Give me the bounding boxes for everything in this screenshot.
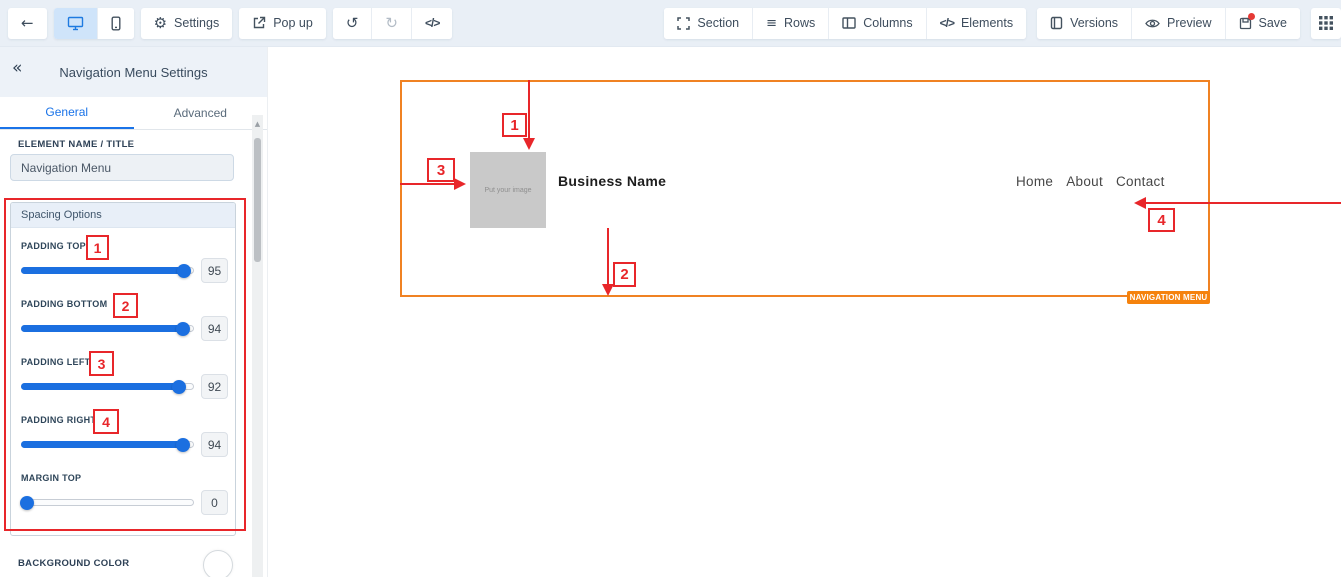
padding-left-slider[interactable] [21,383,194,390]
section-icon [677,17,690,30]
canvas-annotation-4: 4 [1148,208,1175,232]
columns-label: Columns [863,16,912,30]
margin-top-value[interactable]: 0 [201,490,228,515]
slider-fill [21,383,178,390]
logo-placeholder-text: Put your image [484,187,531,194]
elements-icon: </> [940,16,954,30]
tab-advanced[interactable]: Advanced [134,97,268,129]
toolbar-left-group: ← ⚙ Settings Pop up ↺ [0,8,452,39]
canvas-annotation-1: 1 [502,113,527,137]
popup-button[interactable]: Pop up [239,8,326,39]
slider-fill [21,267,183,274]
annotation-badge-1: 1 [86,235,109,260]
desktop-icon [67,16,84,31]
element-name-input[interactable] [10,154,234,181]
popup-label: Pop up [273,16,313,30]
padding-top-row: PADDING TOP 1 95 [11,228,235,286]
canvas-annotation-2: 2 [613,262,636,287]
mobile-icon [111,16,121,31]
code-button[interactable]: </> [411,8,452,39]
device-toggle-group [54,8,134,39]
save-label: Save [1259,16,1288,30]
gear-icon: ⚙ [154,16,167,31]
nav-link-home[interactable]: Home [1016,174,1053,189]
nav-link-about[interactable]: About [1066,174,1103,189]
background-color-label: BACKGROUND COLOR [18,558,129,569]
elements-button[interactable]: </> Elements [926,8,1026,39]
sidebar-scrollbar[interactable]: ▲ [252,115,263,577]
desktop-view-button[interactable] [54,8,97,39]
slider-thumb[interactable] [176,438,190,452]
padding-right-label: PADDING RIGHT [21,415,96,425]
margin-top-slider[interactable] [21,499,194,506]
preview-label: Preview [1167,16,1211,30]
padding-left-value[interactable]: 92 [201,374,228,399]
spacing-options-header: Spacing Options [11,203,235,228]
margin-top-row: MARGIN TOP 0 [11,460,235,518]
element-tag-label: NAVIGATION MENU [1127,291,1210,304]
undo-icon: ↺ [346,16,359,31]
history-group: ↺ ↻ </> [333,8,453,39]
back-icon: ← [21,16,34,31]
margin-top-label: MARGIN TOP [21,473,81,483]
slider-thumb[interactable] [177,264,191,278]
rows-icon: ≡ [766,17,777,30]
columns-button[interactable]: Columns [828,8,925,39]
editor-canvas: Put your image Business Name Home About … [268,47,1341,577]
section-button[interactable]: Section [664,8,752,39]
columns-icon [842,17,856,29]
element-name-label: ELEMENT NAME / TITLE [18,139,134,150]
padding-bottom-value[interactable]: 94 [201,316,228,341]
sidebar-tabs: General Advanced [0,97,267,130]
elements-label: Elements [961,16,1013,30]
settings-label: Settings [174,16,219,30]
annotation-badge-2: 2 [113,293,138,318]
canvas-annotation-3: 3 [427,158,455,182]
sidebar-header: « Navigation Menu Settings [0,47,267,97]
background-color-swatch[interactable] [203,550,233,577]
annotation-badge-4: 4 [93,409,119,434]
settings-button[interactable]: ⚙ Settings [141,8,233,39]
padding-top-slider[interactable] [21,267,194,274]
slider-thumb[interactable] [172,380,186,394]
page-builder-app: ← ⚙ Settings Pop up ↺ [0,0,1341,577]
slider-thumb[interactable] [176,322,190,336]
arrow-1-head-icon [523,138,535,150]
padding-bottom-label: PADDING BOTTOM [21,299,107,309]
padding-top-value[interactable]: 95 [201,258,228,283]
mobile-view-button[interactable] [97,8,134,39]
scroll-up-arrow-icon[interactable]: ▲ [252,120,263,128]
external-link-icon [252,16,266,30]
code-icon: </> [425,16,439,30]
grid-menu-button[interactable] [1311,8,1341,39]
padding-bottom-slider[interactable] [21,325,194,332]
top-toolbar: ← ⚙ Settings Pop up ↺ [0,0,1341,47]
back-button[interactable]: ← [8,8,47,39]
settings-sidebar: « Navigation Menu Settings General Advan… [0,47,268,577]
save-button[interactable]: Save [1225,8,1301,39]
unsaved-indicator-dot [1248,13,1255,20]
padding-right-value[interactable]: 94 [201,432,228,457]
padding-top-label: PADDING TOP [21,241,86,251]
padding-left-row: PADDING LEFT 3 92 [11,344,235,402]
arrow-1-line [528,80,530,140]
versions-button[interactable]: Versions [1037,8,1131,39]
save-icon [1239,17,1252,30]
collapse-sidebar-icon[interactable]: « [12,60,22,77]
tab-general[interactable]: General [0,97,134,129]
nav-link-contact[interactable]: Contact [1116,174,1165,189]
grid-icon [1319,16,1333,30]
arrow-4-head-icon [1134,197,1146,209]
versions-icon [1050,16,1063,30]
padding-left-label: PADDING LEFT [21,357,90,367]
slider-fill [21,325,182,332]
slider-thumb[interactable] [20,496,34,510]
eye-icon [1145,18,1160,29]
padding-right-row: PADDING RIGHT 4 94 [11,402,235,460]
redo-icon: ↻ [385,16,398,31]
spacing-options-panel: Spacing Options PADDING TOP 1 95 PADDING… [10,202,236,536]
toolbar-right-group: Section ≡ Rows Columns </> Elements [664,8,1341,39]
section-label: Section [697,16,739,30]
sidebar-title: Navigation Menu Settings [59,65,207,80]
redo-button[interactable]: ↻ [371,8,411,39]
rows-label: Rows [784,16,815,30]
file-actions-group: Versions Preview Save [1037,8,1300,39]
arrow-3-line [400,183,455,185]
undo-button[interactable]: ↺ [333,8,372,39]
arrow-4-line [1146,202,1341,204]
versions-label: Versions [1070,16,1118,30]
logo-placeholder[interactable]: Put your image [470,152,546,228]
preview-button[interactable]: Preview [1131,8,1224,39]
nav-links: Home About Contact [1016,174,1165,189]
padding-bottom-row: PADDING BOTTOM 2 94 [11,286,235,344]
annotation-badge-3: 3 [89,351,114,376]
slider-fill [21,441,182,448]
arrow-3-head-icon [454,178,466,190]
arrow-2-line [607,228,609,286]
scrollbar-thumb[interactable] [254,138,261,262]
padding-right-slider[interactable] [21,441,194,448]
business-name-text[interactable]: Business Name [558,173,666,189]
rows-button[interactable]: ≡ Rows [752,8,828,39]
structure-group: Section ≡ Rows Columns </> Elements [664,8,1026,39]
